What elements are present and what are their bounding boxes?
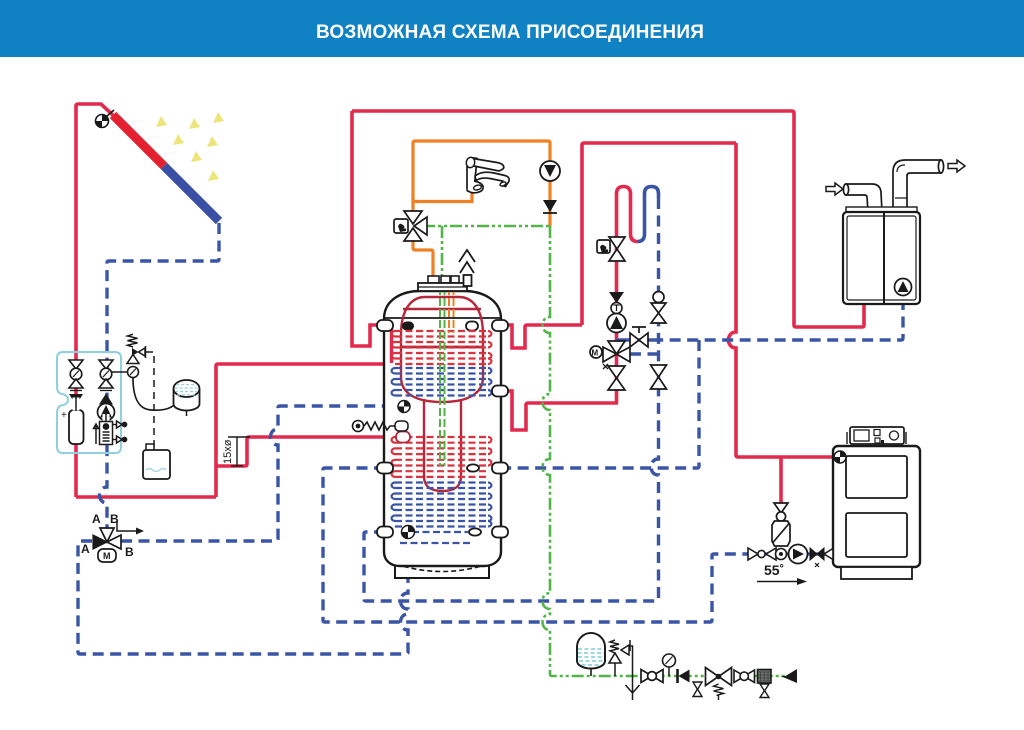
svg-text:+: +: [61, 410, 67, 421]
svg-text:A: A: [81, 542, 90, 556]
svg-text:M: M: [103, 551, 111, 561]
svg-text:ВОЗМОЖНАЯ СХЕМА ПРИСОЕДИНЕНИЯ: ВОЗМОЖНАЯ СХЕМА ПРИСОЕДИНЕНИЯ: [316, 22, 704, 43]
svg-text:M: M: [592, 349, 599, 358]
svg-text:A: A: [92, 512, 101, 526]
svg-text:15xø: 15xø: [222, 439, 234, 464]
svg-text:B: B: [110, 512, 119, 526]
svg-text:B: B: [125, 545, 134, 559]
svg-text:55˚: 55˚: [764, 562, 784, 578]
